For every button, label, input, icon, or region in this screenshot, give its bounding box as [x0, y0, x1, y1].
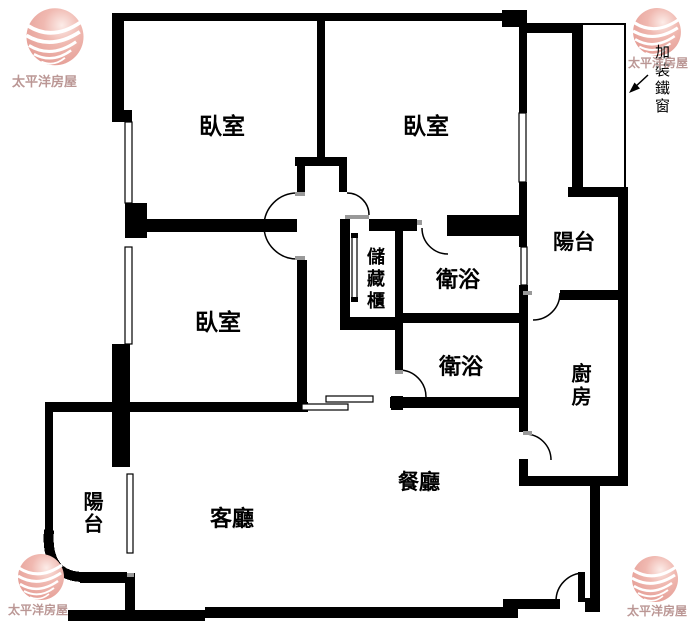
- room-label-bedroom-top-left: 臥室: [178, 107, 266, 141]
- room-label-storage: 儲藏櫃: [362, 247, 388, 313]
- iron-window-arrow-icon: [629, 75, 648, 93]
- room-label-balcony-left: 陽台: [77, 491, 106, 535]
- logo-caption-top-right: 太平洋房屋: [628, 54, 688, 71]
- pacific-logo-icon: [18, 554, 64, 600]
- room-label-bedroom-top-right: 臥室: [382, 107, 470, 141]
- room-label-bathroom-upper: 衛浴: [414, 262, 502, 294]
- floorplan-page: 臥室 臥室 臥室 衛浴 衛浴 廚房 餐廳 客廳 陽台 陽台 儲藏櫃 加裝鐵窗 太…: [0, 0, 697, 628]
- room-label-living: 客廳: [188, 501, 276, 533]
- logo-caption-top-left: 太平洋房屋: [12, 71, 77, 90]
- room-label-balcony-right: 陽台: [530, 226, 618, 256]
- pacific-logo-icon: [632, 556, 678, 602]
- pacific-logo-icon: [26, 8, 83, 65]
- logo-caption-bottom-right: 太平洋房屋: [627, 602, 687, 619]
- room-label-dining: 餐廳: [375, 466, 463, 496]
- room-label-kitchen: 廚房: [565, 363, 594, 409]
- room-label-bedroom-bottom-left: 臥室: [174, 303, 262, 337]
- room-label-bathroom-lower: 衛浴: [417, 349, 505, 381]
- logo-caption-bottom-left: 太平洋房屋: [8, 601, 68, 618]
